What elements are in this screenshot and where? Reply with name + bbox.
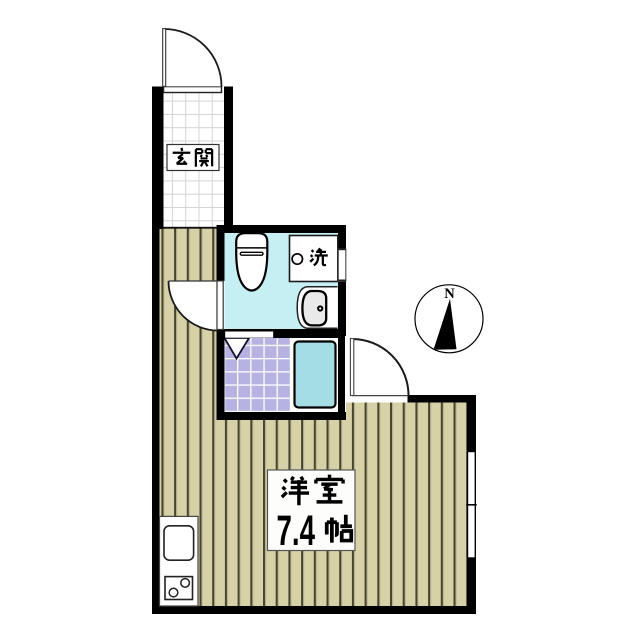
svg-text:N: N [444,286,455,302]
svg-text:7.4: 7.4 [277,507,316,555]
